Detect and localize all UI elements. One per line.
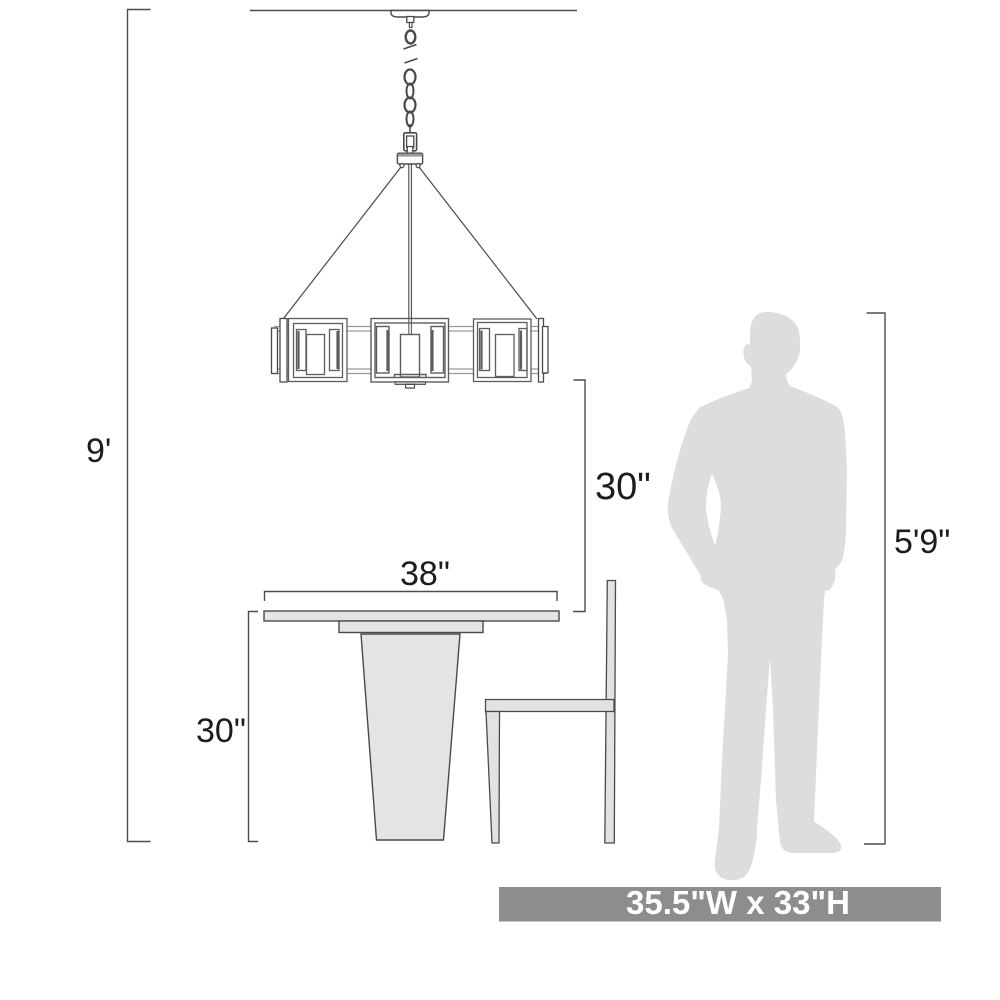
svg-text:30": 30" [196,712,246,750]
svg-text:9': 9' [86,432,111,470]
svg-text:35.5"W x 33"H: 35.5"W x 33"H [626,884,850,921]
svg-text:38": 38" [400,555,450,593]
svg-text:5'9": 5'9" [894,523,950,561]
svg-text:30": 30" [595,466,651,508]
